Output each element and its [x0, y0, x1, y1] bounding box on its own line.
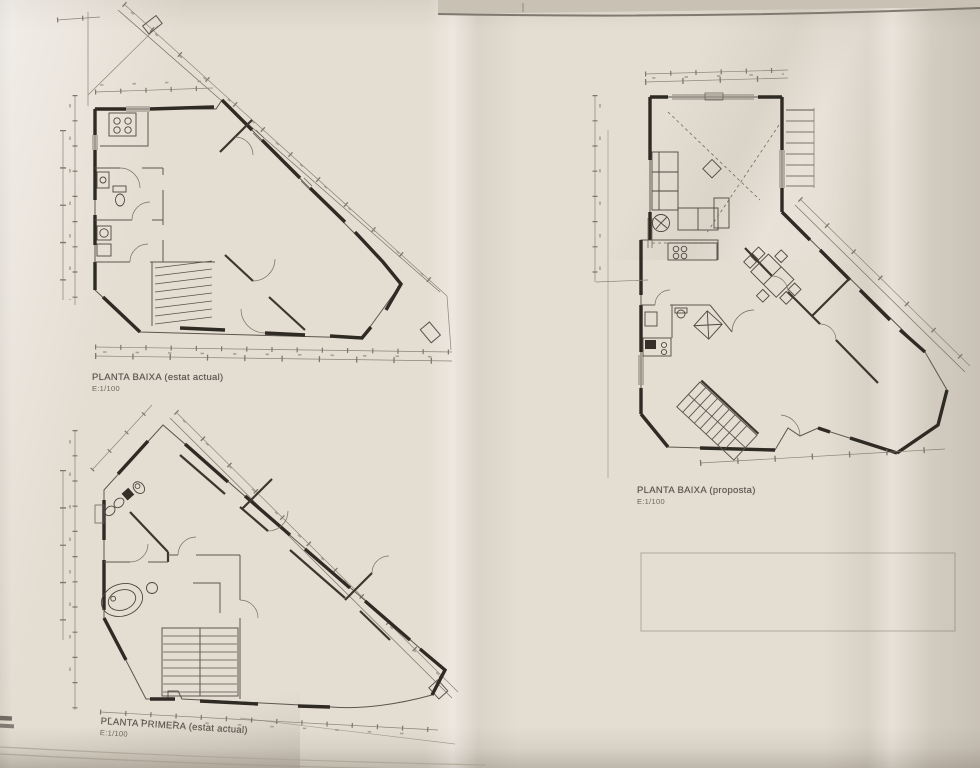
plan2-scale: E:1/100: [637, 497, 756, 506]
door-arcs: [120, 137, 275, 333]
dimension-lines: [63, 81, 452, 361]
interior-walls: [95, 112, 305, 330]
ceiling-fan-symbol: [653, 215, 670, 232]
plan-planta-primera-actual: [63, 405, 458, 744]
door-arcs: [130, 511, 389, 618]
site-boundary: [795, 199, 970, 372]
exterior-stair: [786, 108, 814, 188]
plan-planta-baixa-proposta: [595, 70, 970, 478]
sheet-top-edge: [438, 0, 980, 16]
staircase: [155, 261, 212, 324]
dimension-lines: [63, 405, 455, 744]
building-outline: [93, 100, 401, 338]
plan2-label: PLANTA BAIXA (proposta) E:1/100: [637, 485, 756, 506]
bathtub-symbol: [97, 578, 157, 621]
plan-planta-baixa-actual: [57, 4, 452, 361]
kitchen-stove-symbol: [109, 113, 136, 136]
sheet-bottom-edge: [0, 747, 486, 768]
bathroom-fixtures: [97, 172, 126, 256]
title-block-rect: [641, 553, 955, 631]
window-symbols: [93, 107, 312, 189]
kitchen-stove-symbol: [643, 243, 717, 356]
photographed-plan-sheet: PLANTA BAIXA (estat actual) E:1/100 PLAN…: [0, 0, 980, 768]
binder-mark: [0, 716, 14, 729]
site-boundary: [57, 4, 447, 343]
living-room-furniture: [652, 112, 779, 234]
plan1-label: PLANTA BAIXA (estat actual) E:1/100: [92, 372, 223, 393]
bathroom-fixtures: [103, 479, 147, 521]
plan2-title: PLANTA BAIXA (proposta): [637, 485, 756, 496]
interior-walls: [104, 455, 390, 699]
plan1-title: PLANTA BAIXA (estat actual): [92, 372, 223, 383]
window-symbols: [639, 93, 784, 385]
building-outline: [639, 93, 947, 453]
staircase: [162, 628, 238, 696]
bathroom-fixtures: [645, 308, 722, 339]
interior-walls: [641, 240, 878, 383]
plan1-scale: E:1/100: [92, 384, 223, 393]
building-outline: [95, 425, 445, 708]
